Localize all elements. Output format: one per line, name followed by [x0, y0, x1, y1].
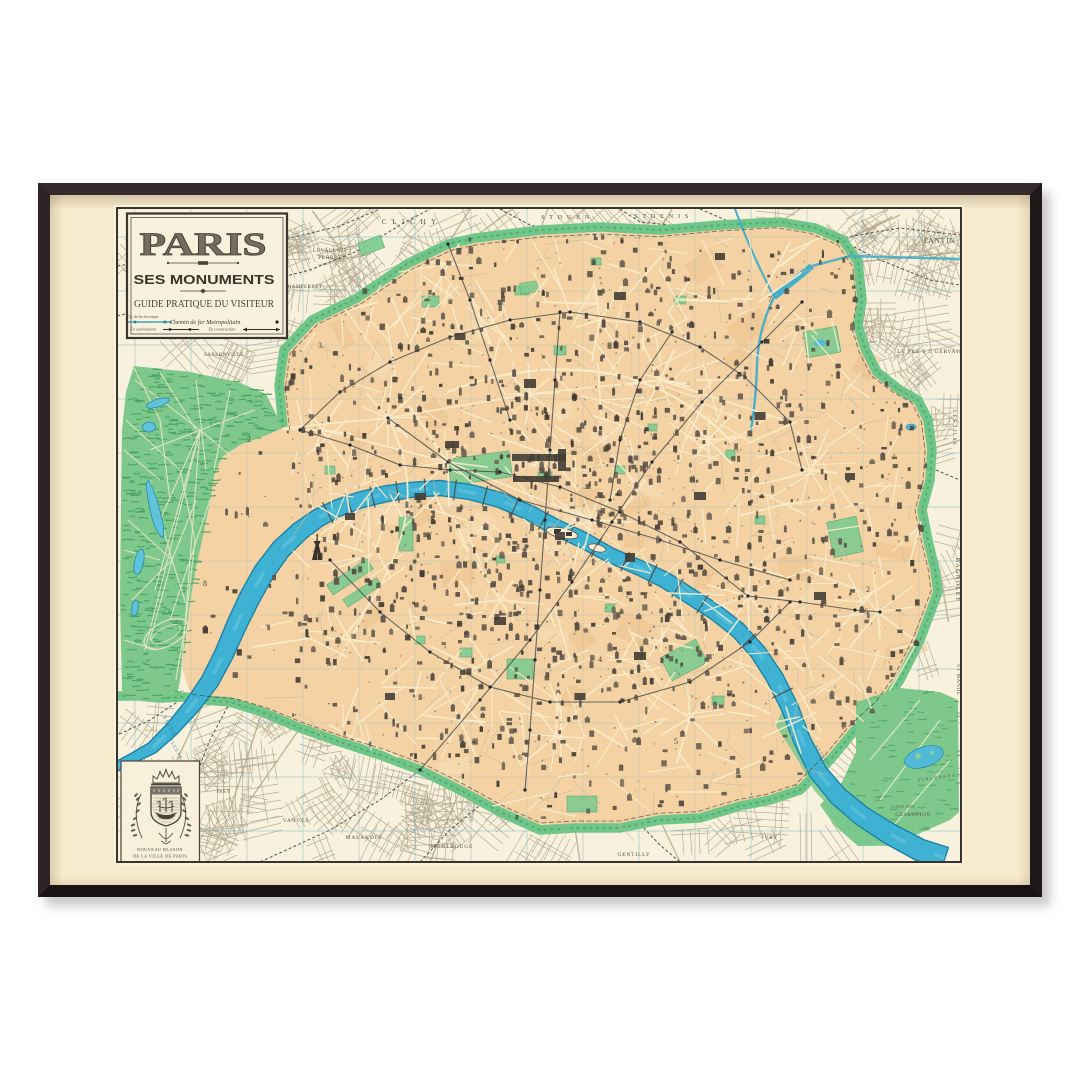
svg-text:S T O U E N: S T O U E N [541, 214, 591, 221]
svg-text:GUIDE PRATIQUE DU VISITEUR: GUIDE PRATIQUE DU VISITEUR [134, 299, 274, 310]
svg-text:LE PRE S T GERVAIS: LE PRE S T GERVAIS [897, 349, 963, 355]
svg-text:2: 2 [866, 585, 870, 594]
svg-text:8: 8 [203, 579, 207, 588]
svg-text:C L I C H Y: C L I C H Y [382, 218, 438, 226]
svg-text:2: 2 [247, 435, 251, 444]
svg-text:MONTROUGE: MONTROUGE [431, 844, 473, 850]
svg-text:CHARENTON: CHARENTON [895, 813, 930, 818]
svg-text:MALAKOFF: MALAKOFF [346, 835, 383, 841]
svg-text:ISSY: ISSY [216, 789, 231, 795]
svg-text:VANVES: VANVES [283, 818, 309, 824]
svg-text:ST MANDE: ST MANDE [955, 664, 960, 696]
svg-text:PANTIN: PANTIN [924, 237, 956, 245]
svg-text:PERRET: PERRET [318, 255, 342, 261]
svg-text:En construction: En construction [208, 327, 236, 332]
svg-text:7: 7 [768, 295, 772, 304]
svg-text:Ch. de fer electrique: Ch. de fer electrique [128, 315, 159, 319]
svg-text:CHAMPERRET: CHAMPERRET [284, 285, 323, 290]
svg-text:S T D E N I S: S T D E N I S [634, 213, 690, 220]
svg-text:NOUVEAU BLASON: NOUVEAU BLASON [137, 847, 183, 852]
svg-text:GENTILLY: GENTILLY [617, 852, 650, 858]
svg-text:En exploitation: En exploitation [129, 327, 156, 332]
svg-text:3: 3 [318, 341, 322, 350]
svg-text:BAGNOLET: BAGNOLET [954, 558, 960, 602]
svg-text:5: 5 [674, 737, 678, 746]
svg-text:IVRY: IVRY [762, 835, 778, 841]
svg-text:LEVALLOIS: LEVALLOIS [313, 248, 347, 254]
svg-text:Chemin de fer Metropolitain: Chemin de fer Metropolitain [170, 319, 241, 326]
svg-text:6: 6 [864, 607, 868, 616]
svg-text:CONFLANS: CONFLANS [891, 804, 915, 809]
svg-text:PARIS: PARIS [140, 227, 267, 263]
svg-text:6: 6 [518, 753, 522, 762]
svg-text:SES MONUMENTS: SES MONUMENTS [134, 272, 275, 287]
svg-text:LES LILAS: LES LILAS [951, 410, 957, 446]
svg-text:4: 4 [598, 655, 602, 664]
svg-text:DE LA VILLE DE PARIS: DE LA VILLE DE PARIS [133, 854, 188, 859]
svg-text:SABLONVILLE: SABLONVILLE [204, 353, 244, 358]
svg-text:5: 5 [670, 326, 674, 335]
